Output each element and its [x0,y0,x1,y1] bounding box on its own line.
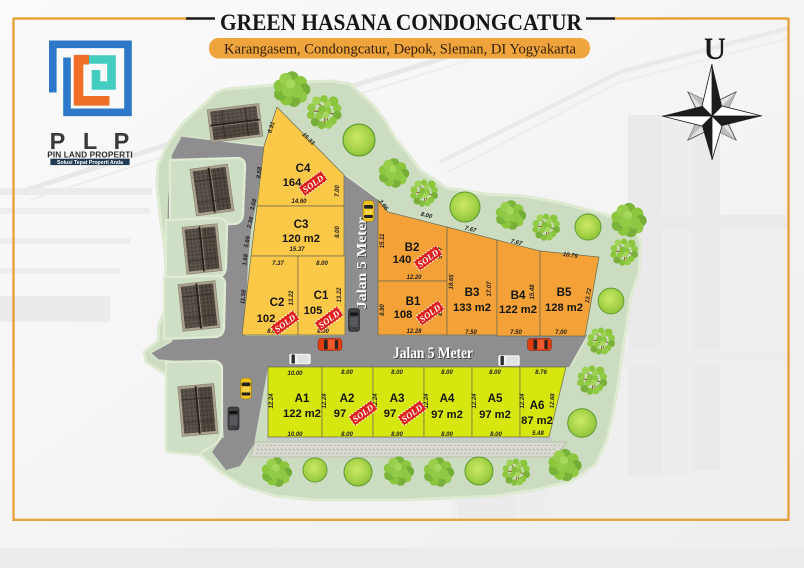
svg-text:8.00: 8.00 [441,370,453,376]
svg-text:5.48: 5.48 [532,431,544,437]
svg-text:97 m2: 97 m2 [479,409,511,421]
svg-text:7.37: 7.37 [272,261,284,267]
svg-text:Jalan 5 Meter: Jalan 5 Meter [354,217,369,309]
svg-text:8.00: 8.00 [391,432,403,438]
svg-text:7.50: 7.50 [465,330,477,336]
svg-text:8.00: 8.00 [391,370,403,376]
svg-text:13.22: 13.22 [289,290,295,306]
svg-text:108: 108 [394,309,413,321]
svg-text:B3: B3 [465,286,480,299]
svg-text:8.76: 8.76 [535,370,547,376]
svg-text:97: 97 [384,408,396,420]
svg-text:15.37: 15.37 [289,247,305,253]
svg-text:8.00: 8.00 [316,261,328,267]
svg-text:A3: A3 [390,392,405,405]
svg-text:97 m2: 97 m2 [431,409,463,421]
svg-text:8.00: 8.00 [489,370,501,376]
svg-text:GREEN HASANA CONDONGCATUR: GREEN HASANA CONDONGCATUR [220,10,583,36]
svg-text:Jalan 5 Meter: Jalan 5 Meter [393,345,473,362]
svg-text:122 m2: 122 m2 [283,408,321,420]
svg-text:B1: B1 [406,295,421,308]
svg-text:12.24: 12.24 [424,393,430,409]
svg-text:A6: A6 [530,399,545,412]
svg-text:A1: A1 [295,392,310,405]
svg-text:87 m2: 87 m2 [521,415,553,427]
svg-text:C1: C1 [314,289,329,302]
svg-text:10.00: 10.00 [287,371,303,377]
svg-text:128 m2: 128 m2 [545,302,583,314]
svg-text:12.24: 12.24 [520,393,526,409]
svg-text:B2: B2 [405,241,420,254]
svg-text:97: 97 [334,408,346,420]
svg-text:12.28: 12.28 [406,329,422,335]
svg-text:18.65: 18.65 [449,274,456,290]
svg-text:B4: B4 [511,289,526,302]
svg-text:13.22: 13.22 [337,287,343,303]
svg-text:8.00: 8.00 [341,432,353,438]
svg-text:7.50: 7.50 [510,330,522,336]
svg-text:10.00: 10.00 [287,432,303,438]
svg-text:120 m2: 120 m2 [282,233,320,245]
svg-text:15.11: 15.11 [380,233,386,248]
svg-text:14.60: 14.60 [291,199,307,205]
svg-text:12.68: 12.68 [549,393,556,409]
svg-text:12.24: 12.24 [472,393,478,409]
svg-text:133 m2: 133 m2 [453,302,491,314]
svg-text:PIN LAND PROPERTI: PIN LAND PROPERTI [47,149,133,159]
svg-text:8.00: 8.00 [341,370,353,376]
svg-text:C2: C2 [270,296,285,309]
svg-text:8.00: 8.00 [490,432,502,438]
svg-text:A5: A5 [488,392,503,405]
svg-text:C4: C4 [296,162,311,175]
svg-text:17.07: 17.07 [487,281,493,297]
svg-text:15.48: 15.48 [530,284,536,300]
svg-text:7.00: 7.00 [335,185,341,197]
svg-text:Karangasem, Condongcatur, Depo: Karangasem, Condongcatur, Depok, Sleman,… [224,42,576,58]
svg-text:7.00: 7.00 [555,330,567,336]
svg-text:102: 102 [257,313,276,325]
svg-text:105: 105 [304,305,323,317]
svg-text:A4: A4 [440,392,455,405]
svg-text:8.90: 8.90 [380,304,386,316]
svg-text:122 m2: 122 m2 [499,304,537,316]
svg-text:12.20: 12.20 [406,275,422,281]
svg-text:12.24: 12.24 [322,393,328,409]
svg-text:8.00: 8.00 [441,432,453,438]
svg-text:B5: B5 [557,286,572,299]
svg-text:A2: A2 [340,392,355,405]
svg-text:12.24: 12.24 [269,393,275,409]
svg-text:Solusi Tepat Properti Anda: Solusi Tepat Properti Anda [57,160,123,166]
svg-text:8.00: 8.00 [335,226,341,238]
svg-text:140: 140 [393,254,412,266]
svg-text:C3: C3 [294,218,309,231]
